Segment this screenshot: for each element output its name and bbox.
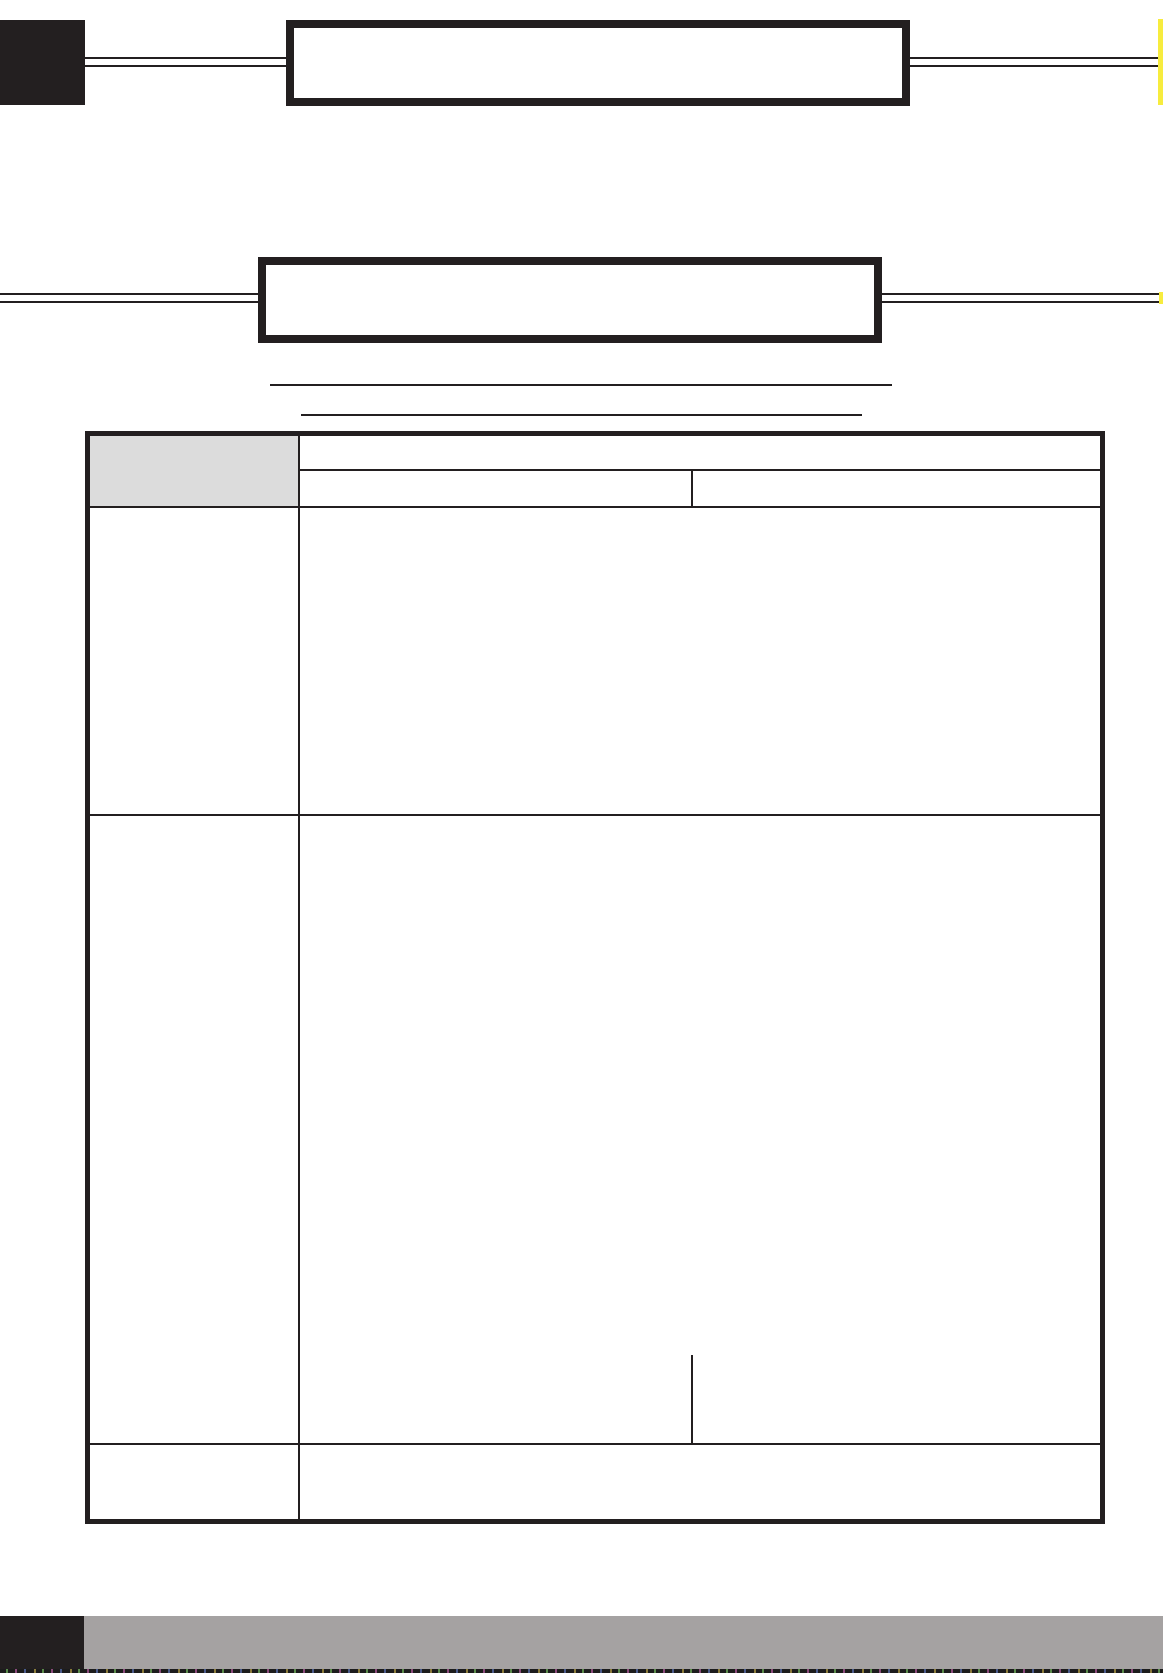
write-line-1 [270, 384, 892, 386]
double-rule-mid-right-lower [878, 301, 1160, 303]
page-canvas: { "page": { "background": "#ffffff", "in… [0, 0, 1163, 1673]
section-title-box [258, 257, 882, 343]
double-rule-top-right-upper [906, 57, 1160, 59]
row1-content-cell [300, 508, 1100, 814]
row3-label-cell [90, 1445, 298, 1519]
header-left-cell [300, 471, 691, 506]
double-rule-mid-left-upper [0, 293, 262, 295]
unit-title-box [286, 20, 910, 106]
top-left-corner-block [0, 20, 85, 105]
page-edge-tick-yellow [1159, 292, 1163, 304]
row3-content-cell [300, 1445, 1100, 1519]
bottom-left-corner-block [0, 1616, 84, 1671]
double-rule-top-right-lower [906, 65, 1160, 67]
double-rule-mid-left-lower [0, 301, 262, 303]
double-rule-mid-right-upper [878, 293, 1160, 295]
double-rule-top-left-lower [85, 65, 290, 67]
row1-label-cell [90, 508, 298, 814]
page-edge-tab-yellow [1158, 19, 1163, 105]
write-line-2 [301, 414, 862, 416]
corner-header-cell [90, 436, 298, 506]
row2-label-cell [90, 816, 298, 1443]
header-right-cell [693, 471, 1100, 506]
row2-content-cell [300, 816, 1100, 1443]
worksheet-table [85, 431, 1105, 1524]
page-bottom-edge-noise [0, 1669, 1163, 1673]
footer-band [84, 1616, 1163, 1669]
header-top-cell [300, 436, 1100, 469]
double-rule-top-left-upper [85, 57, 290, 59]
